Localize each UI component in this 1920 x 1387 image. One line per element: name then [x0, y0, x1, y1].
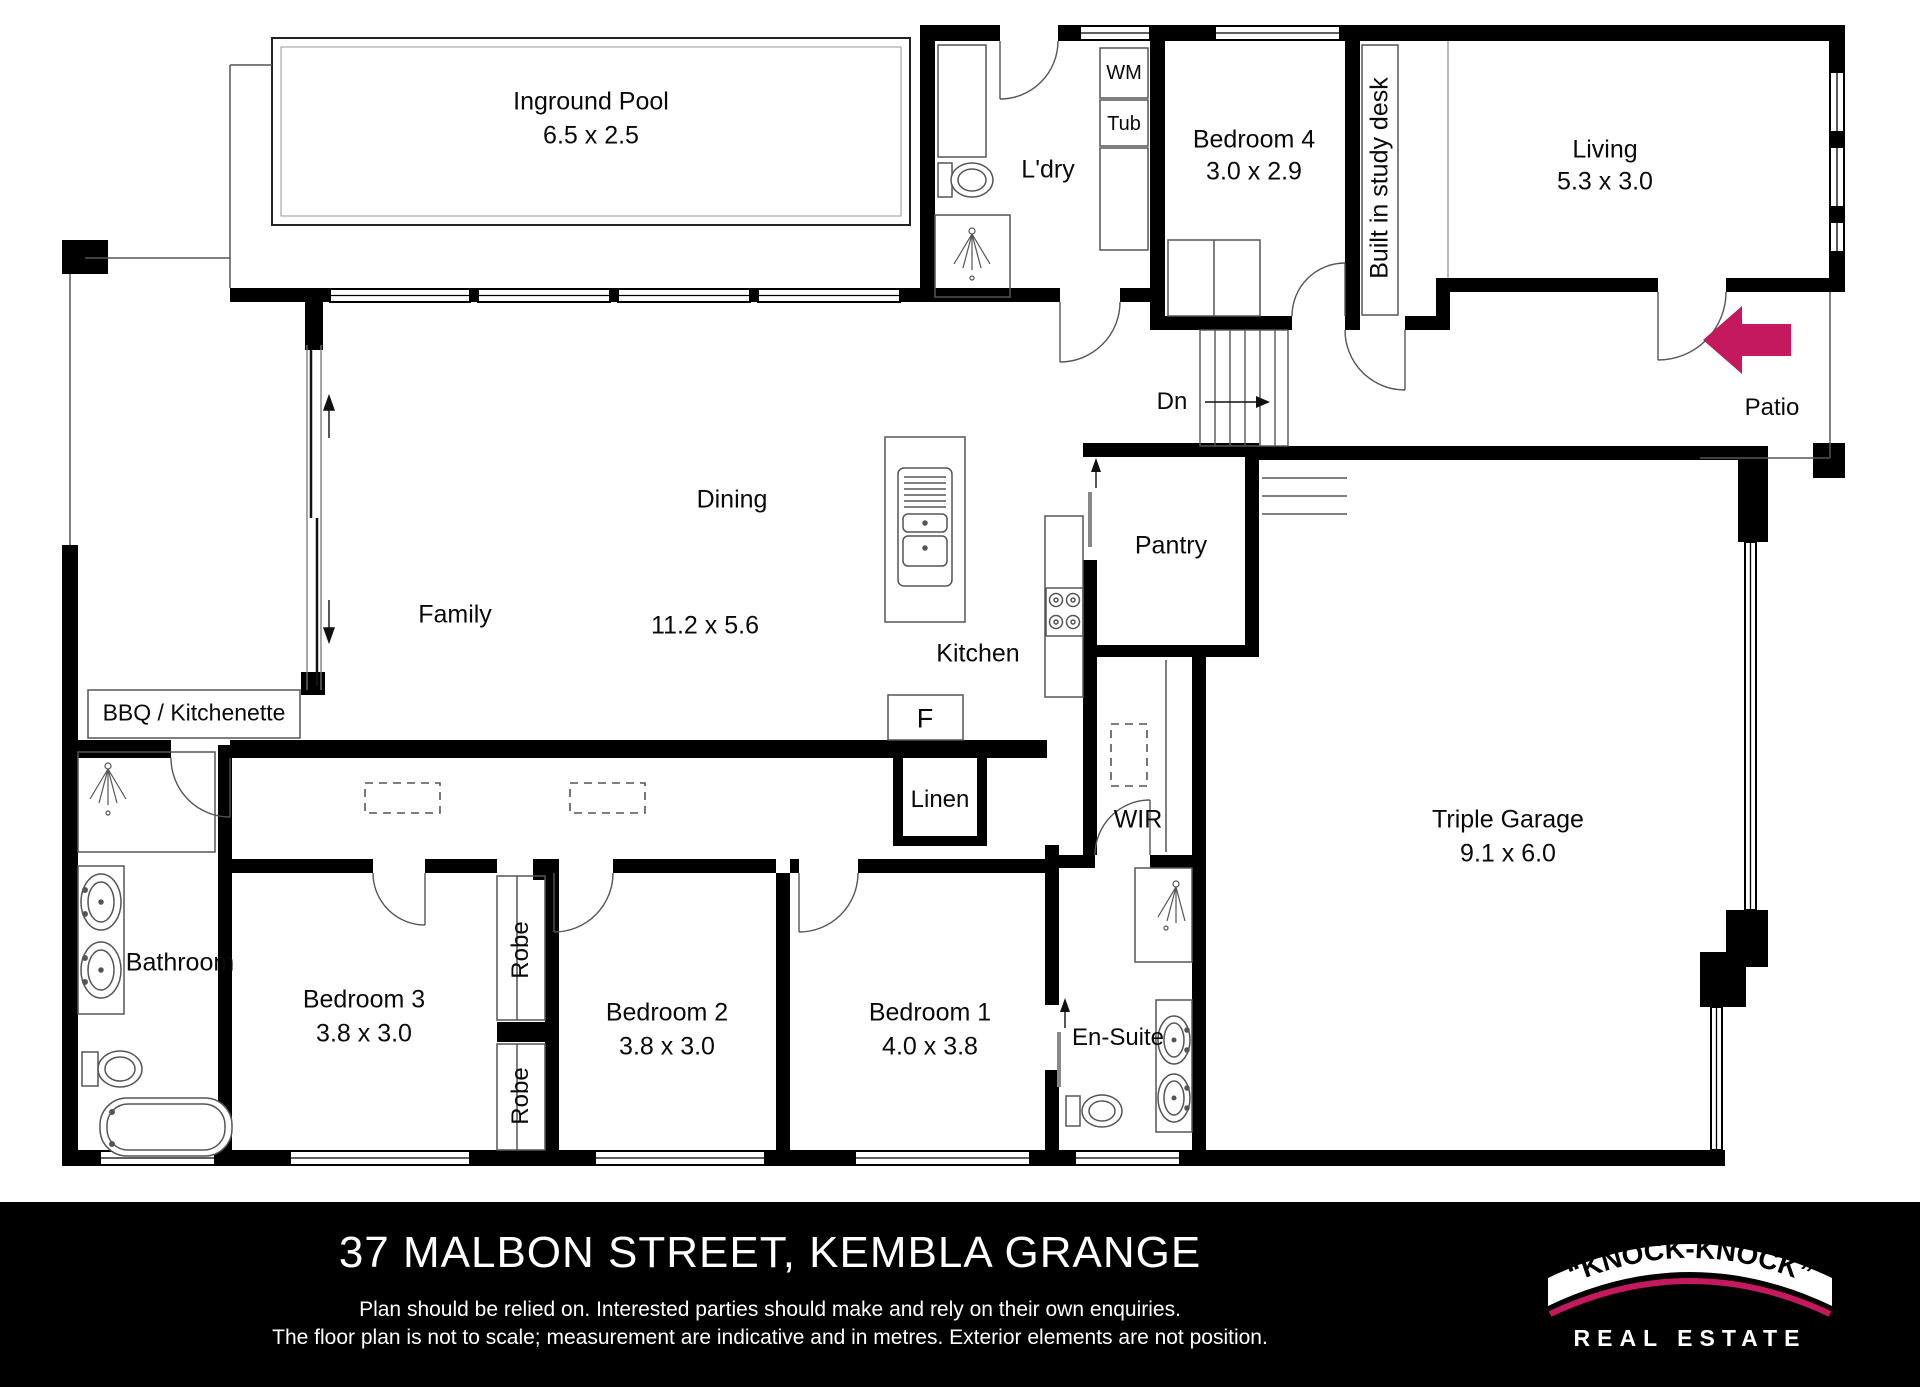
room-dims-dining: 11.2 x 5.6	[651, 614, 759, 639]
sliding-doors	[307, 345, 1101, 1087]
label-stairs-down: Dn	[1157, 390, 1188, 414]
outlines	[70, 38, 1830, 1150]
room-dims-garage: 9.1 x 6.0	[1460, 842, 1556, 867]
kitchen-counter	[1045, 516, 1083, 697]
label-fridge: F	[917, 706, 934, 733]
floorplan-page: Inground Pool 6.5 x 2.5 L'dry WM Tub Bed…	[0, 0, 1920, 1387]
room-label-linen: Linen	[911, 788, 970, 812]
room-label-laundry: L'dry	[1021, 158, 1074, 183]
room-label-garage: Triple Garage	[1432, 808, 1584, 833]
agency-logo: “KNOCK-KNOCK” REAL ESTATE	[1540, 1226, 1840, 1362]
room-label-family: Family	[418, 603, 492, 628]
dashed-units	[365, 724, 1147, 813]
label-robe-bottom: Robe	[509, 1067, 533, 1124]
room-label-living: Living	[1572, 138, 1637, 163]
shower-spray-icon	[954, 228, 990, 280]
toilet-icon	[82, 1051, 142, 1087]
sink-icon	[81, 942, 121, 998]
room-dims-living: 5.3 x 3.0	[1557, 170, 1653, 195]
label-tub: Tub	[1107, 114, 1141, 134]
room-dims-bedroom4: 3.0 x 2.9	[1206, 160, 1302, 185]
shower-spray-icon	[1158, 881, 1185, 930]
label-robe-top: Robe	[509, 921, 533, 978]
cooktop-icon	[1046, 588, 1083, 636]
property-address: 37 MALBON STREET, KEMBLA GRANGE	[40, 1228, 1500, 1278]
label-study-desk: Built in study desk	[1368, 77, 1393, 279]
room-label-wir: WIR	[1114, 808, 1163, 833]
stairs-icon	[1200, 330, 1347, 514]
kitchen-sink-icon	[898, 468, 952, 586]
room-label-dining: Dining	[697, 488, 768, 513]
room-dims-pool: 6.5 x 2.5	[543, 124, 639, 149]
ensuite-slider	[1057, 998, 1070, 1087]
label-bbq-kitchenette: BBQ / Kitchenette	[103, 702, 286, 725]
room-label-patio: Patio	[1745, 396, 1800, 420]
toilet-icon	[938, 163, 993, 197]
room-label-bathroom: Bathroom	[126, 951, 234, 976]
shower-spray-icon	[90, 763, 126, 815]
room-label-pantry: Pantry	[1135, 534, 1207, 559]
room-label-ensuite: En-Suite	[1072, 1026, 1164, 1050]
laundry-bench	[938, 45, 986, 157]
island-bench	[885, 437, 965, 622]
toilet-icon	[1066, 1095, 1122, 1127]
logo-tagline-text: REAL ESTATE	[1574, 1325, 1807, 1351]
room-dims-bedroom3: 3.8 x 3.0	[316, 1022, 412, 1047]
family-sliding-door	[307, 345, 321, 690]
room-label-bedroom1: Bedroom 1	[869, 1001, 991, 1026]
floor-plan: Inground Pool 6.5 x 2.5 L'dry WM Tub Bed…	[0, 0, 1920, 1200]
entry-arrow-icon	[1703, 306, 1791, 374]
disclaimer-line1: Plan should be relied on. Interested par…	[40, 1298, 1500, 1322]
sink-icon	[81, 874, 121, 930]
room-label-bedroom2: Bedroom 2	[606, 1001, 728, 1026]
room-dims-bedroom1: 4.0 x 3.8	[882, 1035, 978, 1060]
disclaimer-line2: The floor plan is not to scale; measurem…	[40, 1326, 1500, 1350]
room-dims-bedroom2: 3.8 x 3.0	[619, 1035, 715, 1060]
label-washing-machine: WM	[1106, 63, 1142, 83]
room-label-kitchen: Kitchen	[936, 642, 1019, 667]
bathroom-shower	[78, 752, 215, 852]
room-label-bedroom3: Bedroom 3	[303, 988, 425, 1013]
room-label-pool: Inground Pool	[513, 90, 669, 115]
room-label-bedroom4: Bedroom 4	[1193, 128, 1315, 153]
bathtub-icon	[100, 1098, 232, 1156]
pantry-slider	[1088, 458, 1101, 547]
sink-icon	[1158, 1074, 1190, 1122]
